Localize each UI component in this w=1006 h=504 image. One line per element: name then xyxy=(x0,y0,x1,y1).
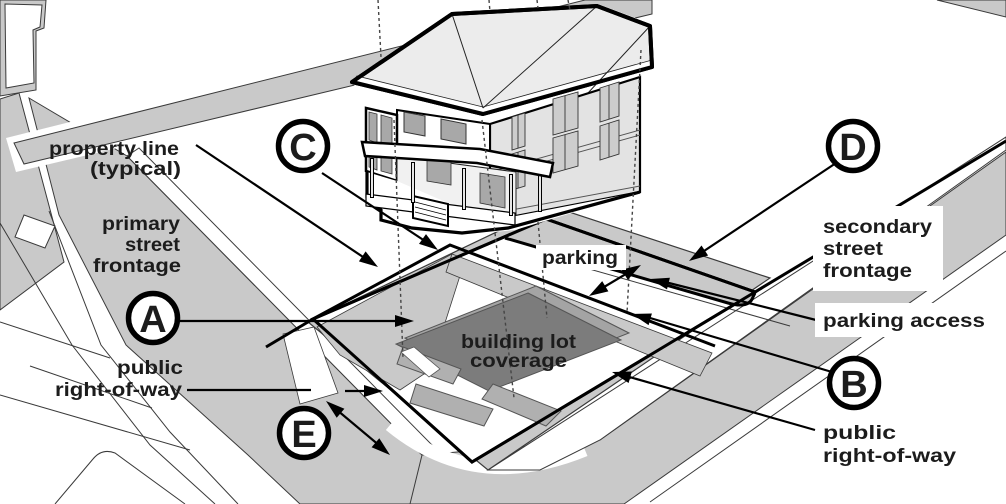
svg-text:property line: property line xyxy=(49,139,179,160)
svg-text:parking access: parking access xyxy=(823,311,985,332)
svg-text:public: public xyxy=(823,423,897,444)
svg-text:secondary: secondary xyxy=(823,217,932,238)
svg-text:A: A xyxy=(139,299,166,341)
svg-text:E: E xyxy=(291,414,316,456)
svg-text:building lot: building lot xyxy=(461,332,577,353)
svg-text:B: B xyxy=(840,364,867,406)
svg-text:right-of-way: right-of-way xyxy=(55,380,182,401)
svg-text:primary: primary xyxy=(102,214,180,235)
svg-text:frontage: frontage xyxy=(823,261,912,282)
svg-text:C: C xyxy=(289,127,316,169)
svg-text:D: D xyxy=(839,127,866,169)
svg-text:street: street xyxy=(823,239,884,260)
svg-text:(typical): (typical) xyxy=(90,159,181,180)
svg-text:parking: parking xyxy=(542,248,618,269)
svg-text:street: street xyxy=(125,235,181,256)
svg-text:frontage: frontage xyxy=(93,256,181,277)
svg-text:right-of-way: right-of-way xyxy=(823,446,957,467)
svg-text:public: public xyxy=(117,358,183,379)
svg-text:coverage: coverage xyxy=(470,351,567,372)
